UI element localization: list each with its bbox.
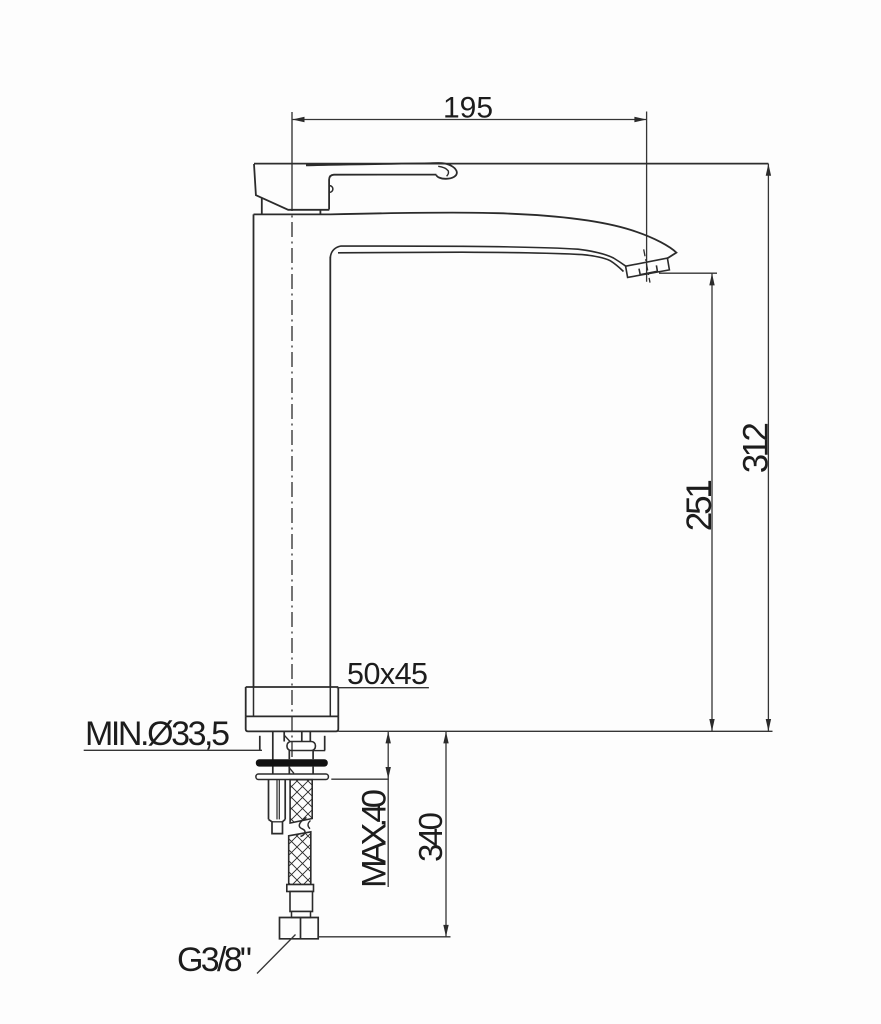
svg-text:251: 251 xyxy=(680,479,719,531)
svg-text:50x45: 50x45 xyxy=(347,657,428,691)
svg-text:312: 312 xyxy=(737,422,776,473)
svg-text:MAX.40: MAX.40 xyxy=(356,789,394,888)
svg-text:340: 340 xyxy=(412,812,449,862)
svg-text:G3/8": G3/8" xyxy=(177,941,252,979)
svg-text:MIN.Ø33,5: MIN.Ø33,5 xyxy=(85,715,230,753)
